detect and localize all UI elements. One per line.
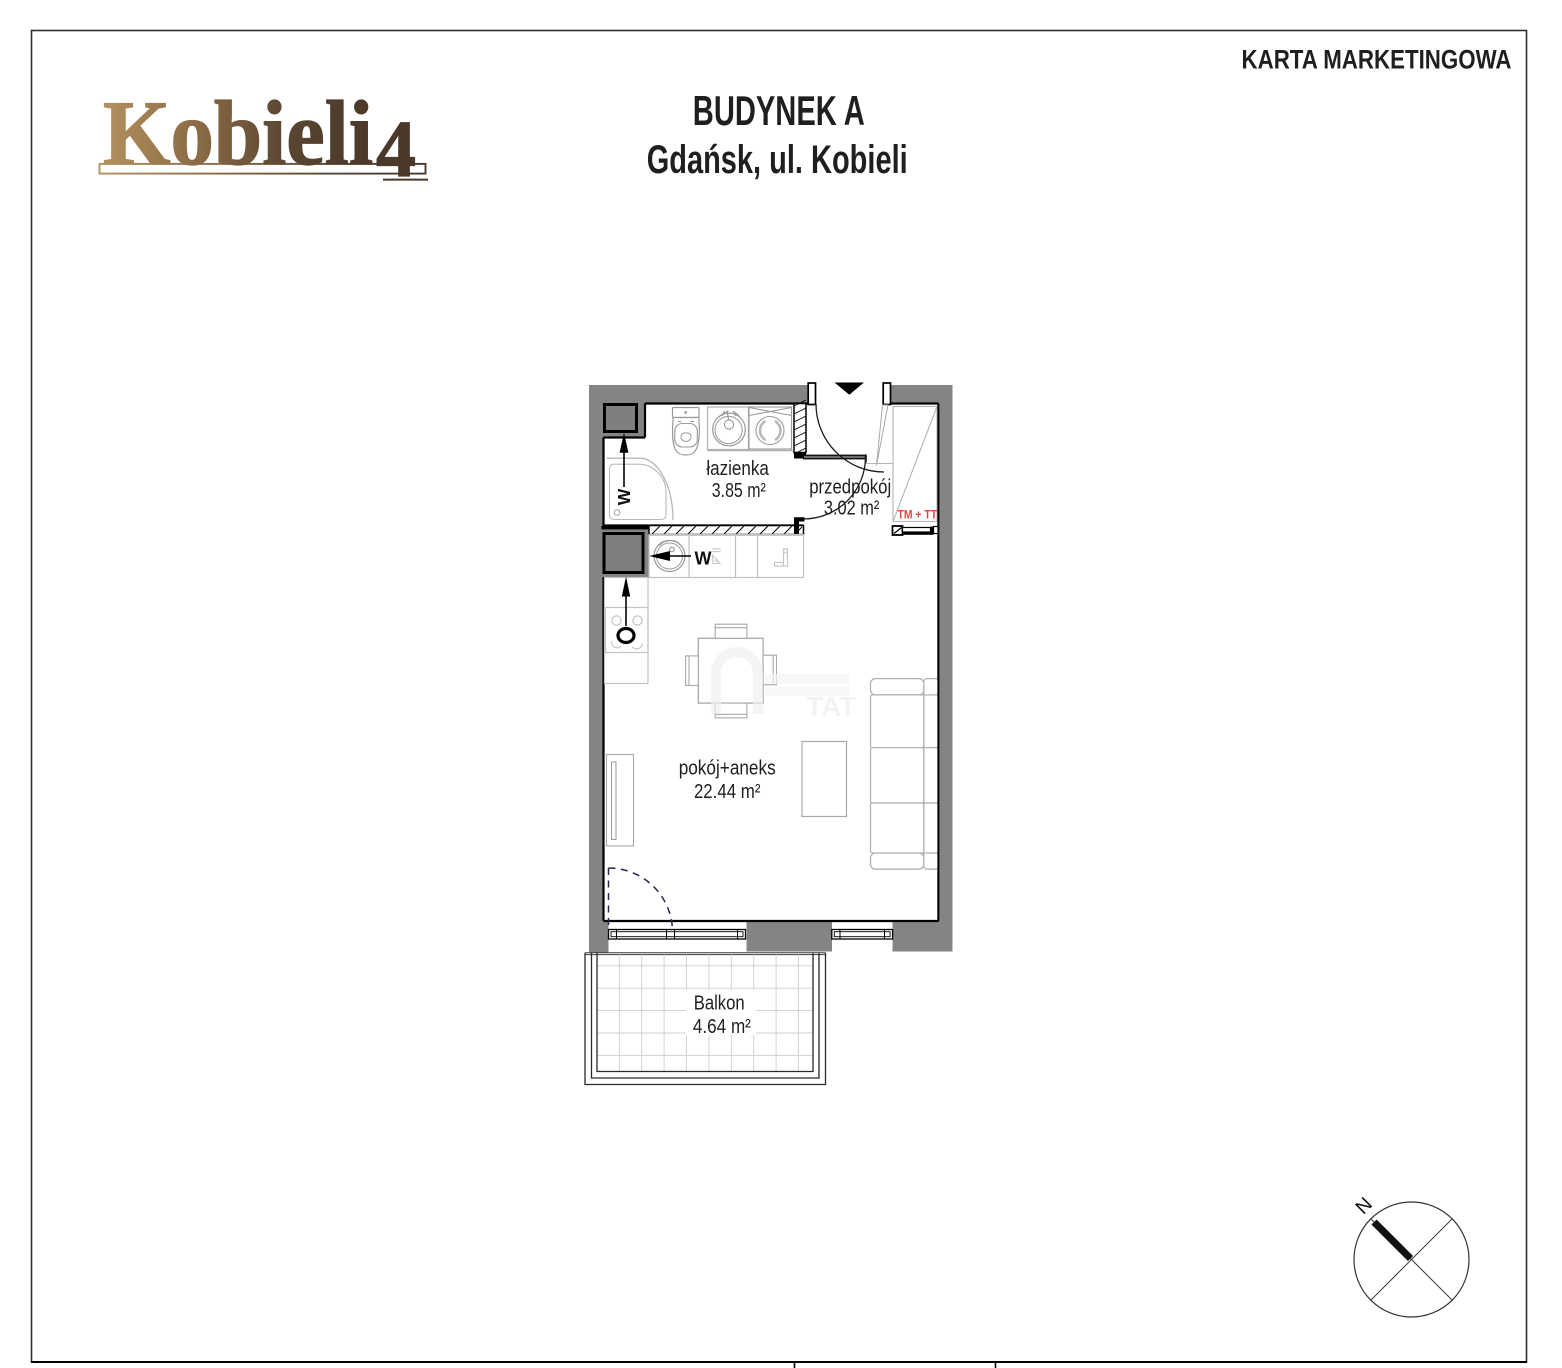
svg-text:W: W xyxy=(695,549,712,569)
svg-text:łazienka: łazienka xyxy=(706,458,769,480)
svg-text:3.85 m²: 3.85 m² xyxy=(712,480,766,502)
svg-text:KARTA MARKETINGOWA: KARTA MARKETINGOWA xyxy=(1242,45,1512,75)
svg-text:22.44 m²: 22.44 m² xyxy=(694,781,761,803)
svg-text:4: 4 xyxy=(376,106,416,194)
svg-text:Balkon: Balkon xyxy=(694,993,745,1015)
svg-text:TAT: TAT xyxy=(806,691,856,722)
svg-text:pokój+aneks: pokój+aneks xyxy=(679,758,776,780)
svg-text:BUDYNEK A: BUDYNEK A xyxy=(693,87,865,134)
svg-text:W: W xyxy=(614,488,634,505)
svg-text:przedpokój: przedpokój xyxy=(809,477,891,499)
svg-text:Gdańsk, ul. Kobieli: Gdańsk, ul. Kobieli xyxy=(647,138,908,182)
svg-text:TM + TT: TM + TT xyxy=(898,510,938,522)
svg-text:Kobieli: Kobieli xyxy=(103,82,373,184)
svg-text:4.64 m²: 4.64 m² xyxy=(693,1016,751,1038)
svg-text:N: N xyxy=(1351,1193,1377,1219)
svg-text:3.02 m²: 3.02 m² xyxy=(824,498,880,520)
